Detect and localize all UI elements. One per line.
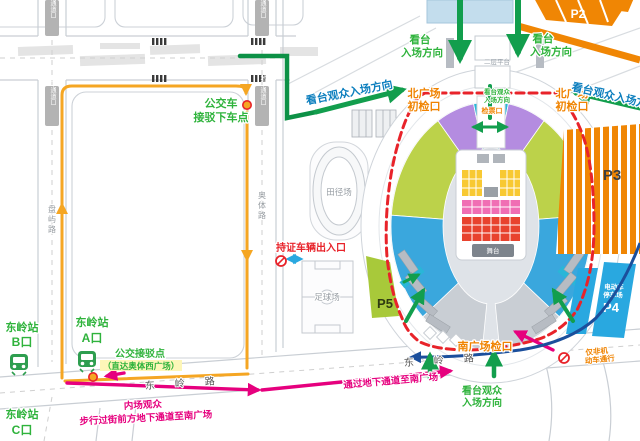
parking-p3: P3 — [556, 124, 640, 254]
p3-label: P3 — [603, 167, 621, 184]
ticket-gate-label: 检票口 — [482, 106, 503, 115]
metro-icon — [78, 351, 96, 372]
bus-shuttle-marker — [89, 373, 97, 381]
track-label: 田径场 — [326, 187, 352, 197]
platform2-label: 二层平台 — [484, 57, 510, 66]
shuttle-point-sub: （直达奥体西广场） — [103, 361, 180, 371]
p5-label: P5 — [377, 296, 393, 311]
north-hall — [427, 0, 513, 23]
station-a-name: 东岭站 — [76, 315, 109, 329]
station-c-exit: C口 — [12, 423, 33, 437]
south-entry-label-1: 看台观众 — [462, 384, 503, 397]
south-check-label: 南广场检口 — [458, 339, 513, 353]
no-entry-icon — [276, 256, 286, 266]
north-check-west-2: 初检口 — [408, 99, 441, 113]
underpass-south-label: 通过地下通道至南广场 — [343, 371, 439, 391]
stand-dir-east-1: 看台 — [533, 32, 554, 45]
venue-access-map: 地下通道口 地下通道口 地下通道口 地下通道口 田径场 足球场 — [0, 0, 640, 441]
stand-dir-west-2: 入场方向 — [401, 46, 443, 59]
aoti-road-label: 奥体路 — [258, 190, 267, 221]
stage-label: 舞台 — [487, 246, 500, 255]
station-a-exit: A口 — [82, 331, 103, 345]
station-c-name: 东岭站 — [6, 407, 39, 421]
north-gate-flow-2: 入场方向 — [483, 95, 511, 104]
south-entry-label-2: 入场方向 — [462, 396, 502, 409]
bus-dropoff-marker — [243, 101, 251, 109]
bus-dropoff-label-1: 公交车 — [205, 96, 238, 110]
underpass-portal-label: 地下通道口 — [259, 0, 266, 19]
north-check-east-2: 初检口 — [556, 99, 589, 113]
metro-icon — [10, 354, 28, 375]
athletics-track: 田径场 — [310, 142, 368, 240]
shuttle-point-label: 公交接驳点 — [115, 347, 165, 360]
stand-dir-east-2: 入场方向 — [530, 45, 572, 58]
underpass-portal-label: 地下通道口 — [49, 0, 56, 19]
station-b-name: 东岭站 — [6, 320, 39, 334]
north-check-west-1: 北广场 — [408, 86, 441, 100]
infield-label-1: 内场观众 — [124, 398, 163, 412]
arena-floor: 舞台 — [456, 150, 526, 260]
underpass-portal-label: 地下通道口 — [259, 74, 266, 106]
no-entry-icon — [559, 353, 569, 363]
permit-gate-label: 持证车辆出入口 — [276, 241, 346, 254]
station-b-exit: B口 — [12, 335, 33, 349]
bus-dropoff-label-2: 接驳下车点 — [194, 110, 249, 124]
soccer-label: 足球场 — [314, 292, 340, 302]
north-gate-flow-1: 看台观众 — [484, 87, 511, 96]
stand-dir-west-1: 看台 — [410, 33, 431, 46]
p2-label: P2 — [571, 7, 586, 21]
panyu-road-label: 盘屿路 — [48, 204, 57, 235]
map-canvas: 地下通道口 地下通道口 地下通道口 地下通道口 田径场 足球场 — [0, 0, 640, 441]
soccer-field: 足球场 — [302, 261, 353, 333]
underpass-portal-label: 地下通道口 — [49, 74, 56, 106]
